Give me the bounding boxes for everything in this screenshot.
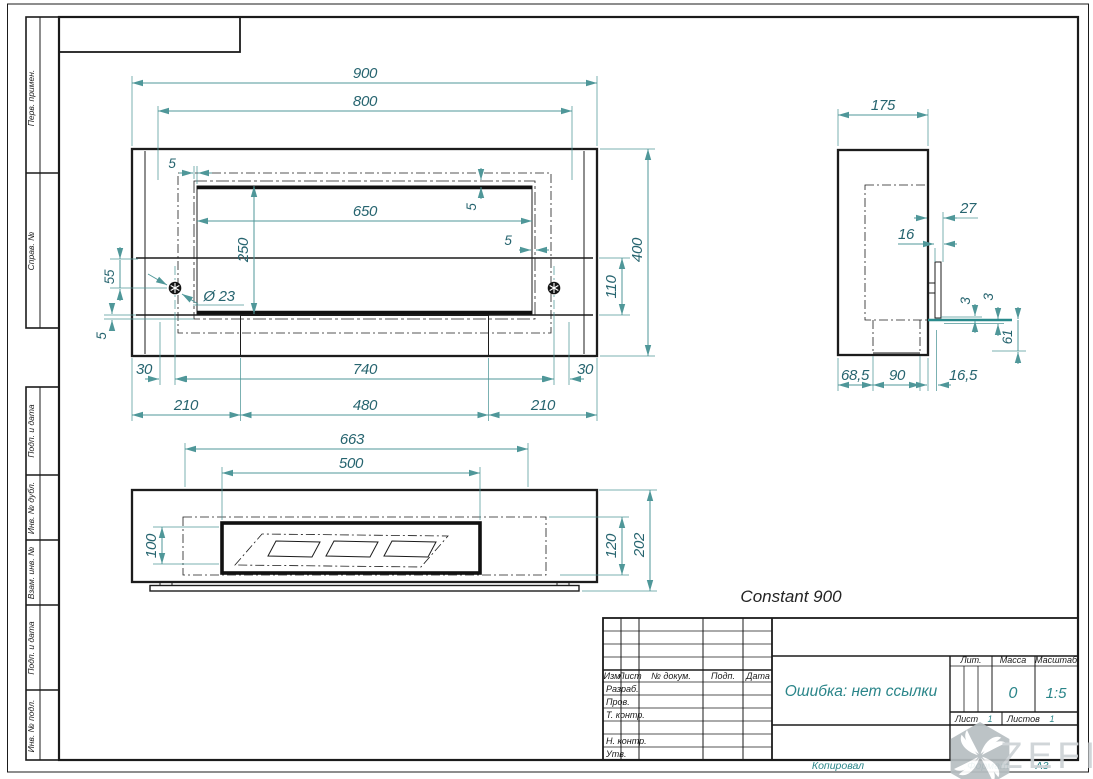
burner-slots: [268, 541, 436, 557]
dim-opening-height: 250: [235, 237, 252, 263]
dim-center-span: 480: [353, 397, 378, 414]
dim-overall-width: 900: [353, 65, 378, 82]
mass-label: Масса: [1000, 655, 1027, 665]
dim-bolt-span: 740: [353, 361, 378, 378]
bolt-icon-left: [169, 266, 182, 312]
dim-tray-depth: 100: [143, 533, 160, 558]
sheets-value: 1: [1049, 714, 1054, 724]
row-tkontr: Т. контр.: [606, 710, 645, 720]
row-prov: Пров.: [606, 697, 630, 707]
dim-left-span: 210: [173, 397, 199, 414]
margin-label-inv-dubl: Инв. № дубл.: [26, 482, 36, 534]
drawing-sheet: Перв. примен. Справ. № Подп. и дата Инв.…: [0, 0, 1093, 779]
dim-block-width: 663: [340, 431, 365, 448]
bolt-icon-right: [548, 266, 561, 312]
dim-tray-width: 500: [339, 455, 364, 472]
mass-value: 0: [1009, 685, 1018, 702]
dim-gap-top-left: 5: [168, 156, 176, 171]
col-podp: Подп.: [711, 671, 735, 681]
row-utv: Утв.: [605, 749, 626, 759]
dim-margin-right: 30: [577, 361, 594, 378]
scale-label: Масштаб: [1035, 655, 1078, 665]
side-view: 175 27 16 3 3 61 68,5 90: [838, 97, 1026, 391]
margin-label-podp-data-2: Подп. и дата: [26, 621, 36, 674]
dim-gap-bottom-left: 5: [94, 332, 109, 340]
dim-bracket-width: 16: [898, 226, 915, 243]
col-data: Дата: [745, 671, 770, 681]
dim-bracket-offset: 27: [959, 200, 977, 217]
watermark: ZEFIRE: [951, 722, 1093, 779]
mount-bracket: [935, 262, 941, 318]
dim-inner-depth: 120: [603, 533, 620, 558]
dim-overall-depth: 202: [631, 532, 648, 558]
hole-diameter-leader: Ø 23: [148, 274, 244, 305]
document-name: Ошибка: нет ссылки: [785, 683, 938, 700]
dim-gap-right-side: 5: [504, 233, 512, 248]
margin-label-sprav-no: Справ. №: [26, 232, 36, 271]
dim-shelf-height: 110: [603, 275, 620, 299]
row-nkontr: Н. контр.: [606, 736, 647, 746]
margin-strip-top: Перв. примен. Справ. №: [26, 17, 59, 328]
sheets-label: Листов: [1006, 714, 1040, 724]
dim-foot-height: 61: [1000, 330, 1015, 344]
row-razrab: Разраб.: [606, 684, 639, 694]
front-view: Ø 23 900 800 650 250 5 5 5 5: [94, 65, 655, 421]
copied-label: Копировал: [812, 760, 864, 772]
dim-right-span: 210: [530, 397, 556, 414]
dim-base-back: 16,5: [949, 367, 978, 384]
sheet-label: Лист: [954, 714, 979, 724]
margin-label-vzam-inv: Взам. инв. №: [26, 547, 36, 600]
dim-bolt-offset: 55: [102, 269, 117, 284]
margin-label-inv-podl: Инв. № подл.: [26, 700, 36, 753]
dim-overall-height: 400: [629, 237, 646, 262]
margin-label-perv-primen: Перв. примен.: [26, 70, 36, 127]
lit-label: Лит.: [959, 655, 981, 665]
dim-depth: 175: [871, 97, 896, 114]
dim-opening-width: 650: [353, 203, 378, 220]
col-list: Лист: [617, 671, 642, 681]
dim-margin-left: 30: [136, 361, 153, 378]
dim-gap-right-top: 5: [464, 203, 479, 211]
mount-centerline-rect: [178, 173, 551, 333]
col-docnum: № докум.: [651, 671, 691, 681]
sheet-value: 1: [987, 714, 992, 724]
margin-strip-bottom: Подп. и дата Инв. № дубл. Взам. инв. № П…: [26, 387, 59, 760]
dim-base-front: 68,5: [841, 367, 870, 384]
dim-inner-width: 800: [353, 93, 378, 110]
base-plate: [150, 586, 579, 592]
plan-view: 663 500 100 120 202: [132, 431, 657, 591]
margin-label-podp-data-1: Подп. и дата: [26, 404, 36, 457]
scale-value: 1:5: [1046, 685, 1068, 702]
dim-base-mid: 90: [889, 367, 906, 384]
dim-glass-gap-b: 3: [981, 293, 996, 301]
product-name: Constant 900: [740, 587, 842, 606]
watermark-brand: ZEFIRE: [1000, 735, 1093, 776]
designation-box: [59, 17, 240, 52]
dim-glass-gap-a: 3: [958, 297, 973, 305]
dim-hole-diameter: Ø 23: [202, 288, 235, 305]
